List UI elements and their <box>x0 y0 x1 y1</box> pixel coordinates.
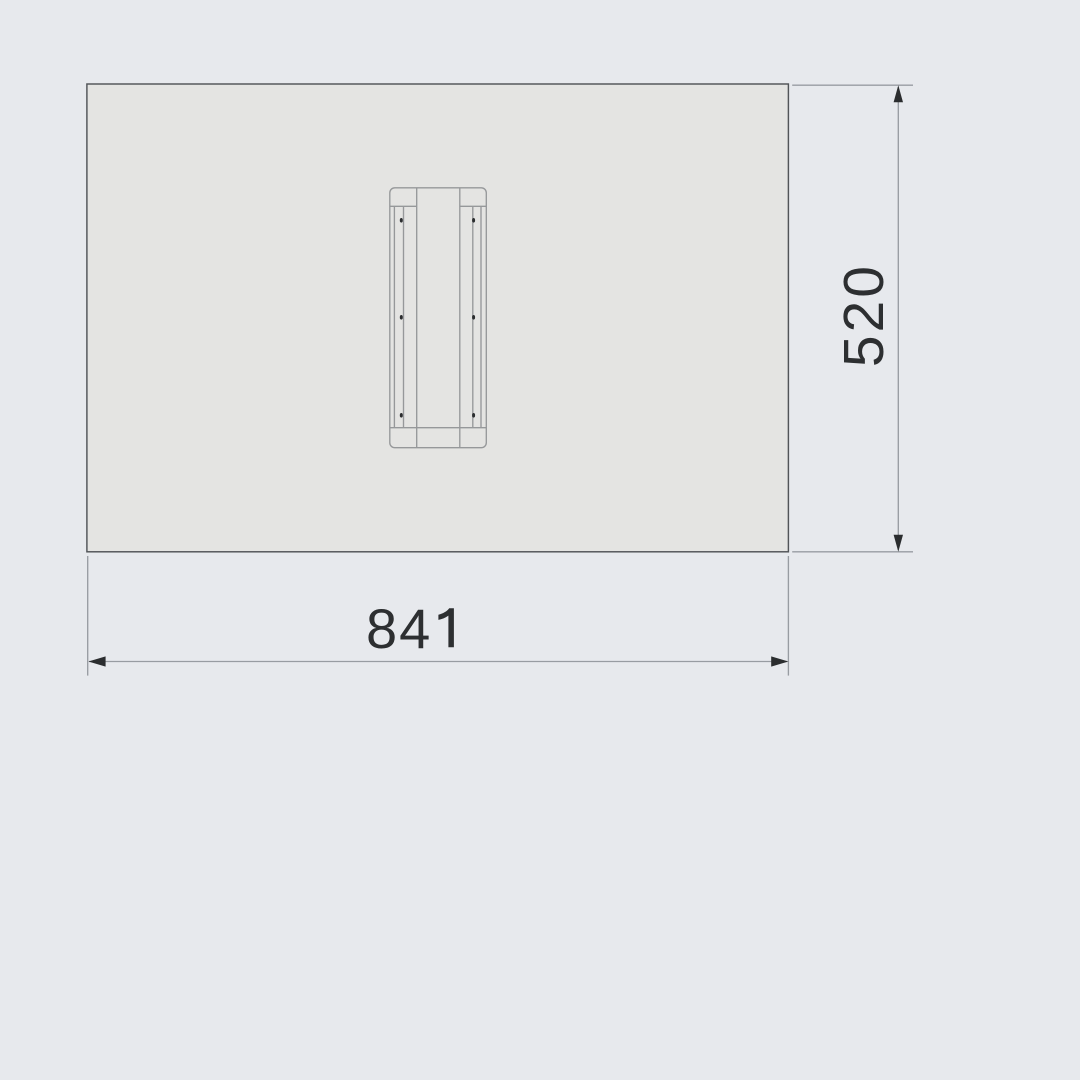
svg-text:520: 520 <box>832 263 896 367</box>
svg-text:84: 84 <box>366 597 432 660</box>
